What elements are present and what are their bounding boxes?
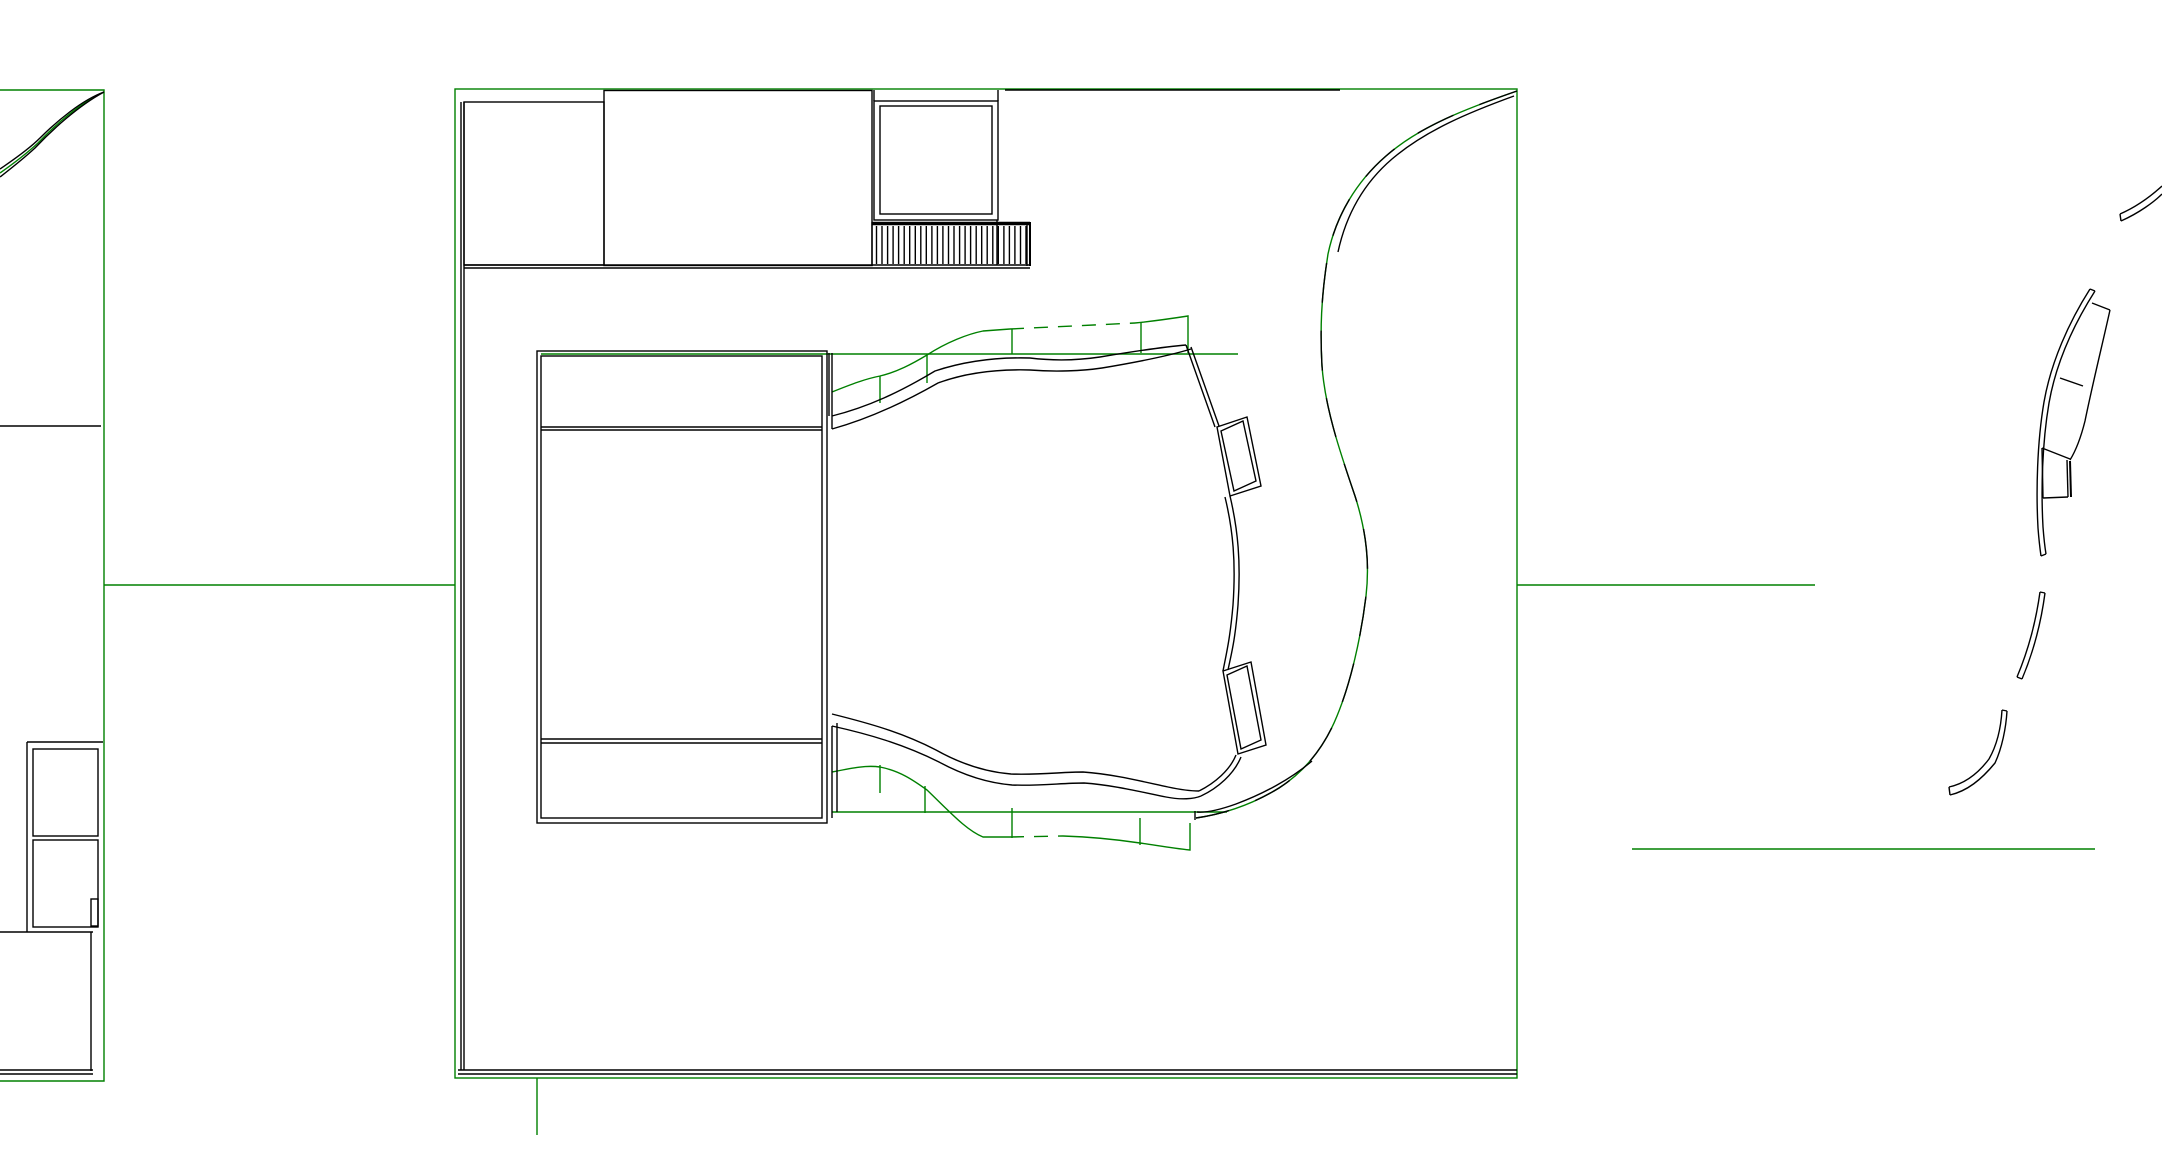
left-room-1	[33, 749, 98, 836]
seat-band-right-low-2	[2070, 461, 2071, 497]
arc-small-cap-bottom	[2017, 677, 2022, 679]
left-entry-curve-green	[0, 92, 104, 173]
seat-band-div-2	[2042, 448, 2070, 459]
s-path-green	[1196, 91, 1517, 818]
site-plan-svg	[0, 0, 2162, 1152]
s-path-double-upper	[1338, 96, 1514, 252]
arc-top-inner	[2121, 194, 2162, 221]
seat-band-bottom	[2043, 497, 2068, 498]
block-a	[464, 102, 604, 265]
drawing-canvas[interactable]	[0, 0, 2162, 1152]
balcony-box-1-outer	[1217, 417, 1261, 496]
block-b	[604, 91, 872, 266]
balcony-box-2-inner	[1227, 666, 1261, 749]
arc-hook-cap-top	[2002, 710, 2007, 711]
arc-main-outer	[2037, 289, 2090, 556]
terrace-wall-upper-2	[1191, 347, 1219, 426]
terrace-bottom-edge-outer	[832, 714, 1199, 791]
contour-bottom-wavy	[832, 766, 1010, 837]
balcony-box-1-inner	[1221, 421, 1256, 491]
left-entry-curve-outer	[0, 92, 104, 177]
contour-top-wavy-dashed	[1010, 323, 1135, 329]
stairs-treads	[877, 226, 1027, 264]
arc-hook-outer	[1949, 710, 2002, 787]
seat-band-right-low-1	[2067, 460, 2068, 497]
left-room-2	[33, 840, 98, 927]
terrace-wall-upper-1	[1186, 345, 1215, 427]
seat-band-right	[2070, 310, 2110, 460]
building-outer	[537, 351, 827, 823]
terrace-bottom-edge-inner	[832, 726, 1201, 799]
arc-small-inner	[2022, 593, 2045, 679]
arc-hook-cap-left	[1949, 787, 1950, 795]
pavilion-inner	[880, 106, 992, 214]
left-room-notch	[91, 899, 98, 926]
building-inner	[541, 356, 822, 818]
arc-main-cap-bottom	[2041, 554, 2046, 556]
seat-band-div-1	[2060, 378, 2083, 386]
s-path-black-dashes	[1196, 91, 1517, 818]
seat-band-top	[2092, 303, 2110, 310]
contour-bottom-wavy-dashed	[1010, 836, 1063, 837]
s-path-tail-parallel	[1197, 761, 1312, 812]
arc-main-inner	[2042, 291, 2095, 554]
arc-main-cap-top	[2090, 289, 2095, 291]
arc-top-cap	[2120, 214, 2121, 221]
pavilion-outer	[874, 101, 998, 220]
terrace-top-edge-outer	[832, 345, 1186, 416]
main-site-boundary	[455, 89, 1517, 1078]
arc-hook-inner	[1950, 711, 2007, 795]
seat-band-left-low	[2042, 448, 2043, 498]
contour-bottom-wavy-end	[1063, 823, 1190, 850]
arc-small-cap-top	[2040, 592, 2045, 593]
terrace-top-edge-inner	[832, 349, 1191, 429]
